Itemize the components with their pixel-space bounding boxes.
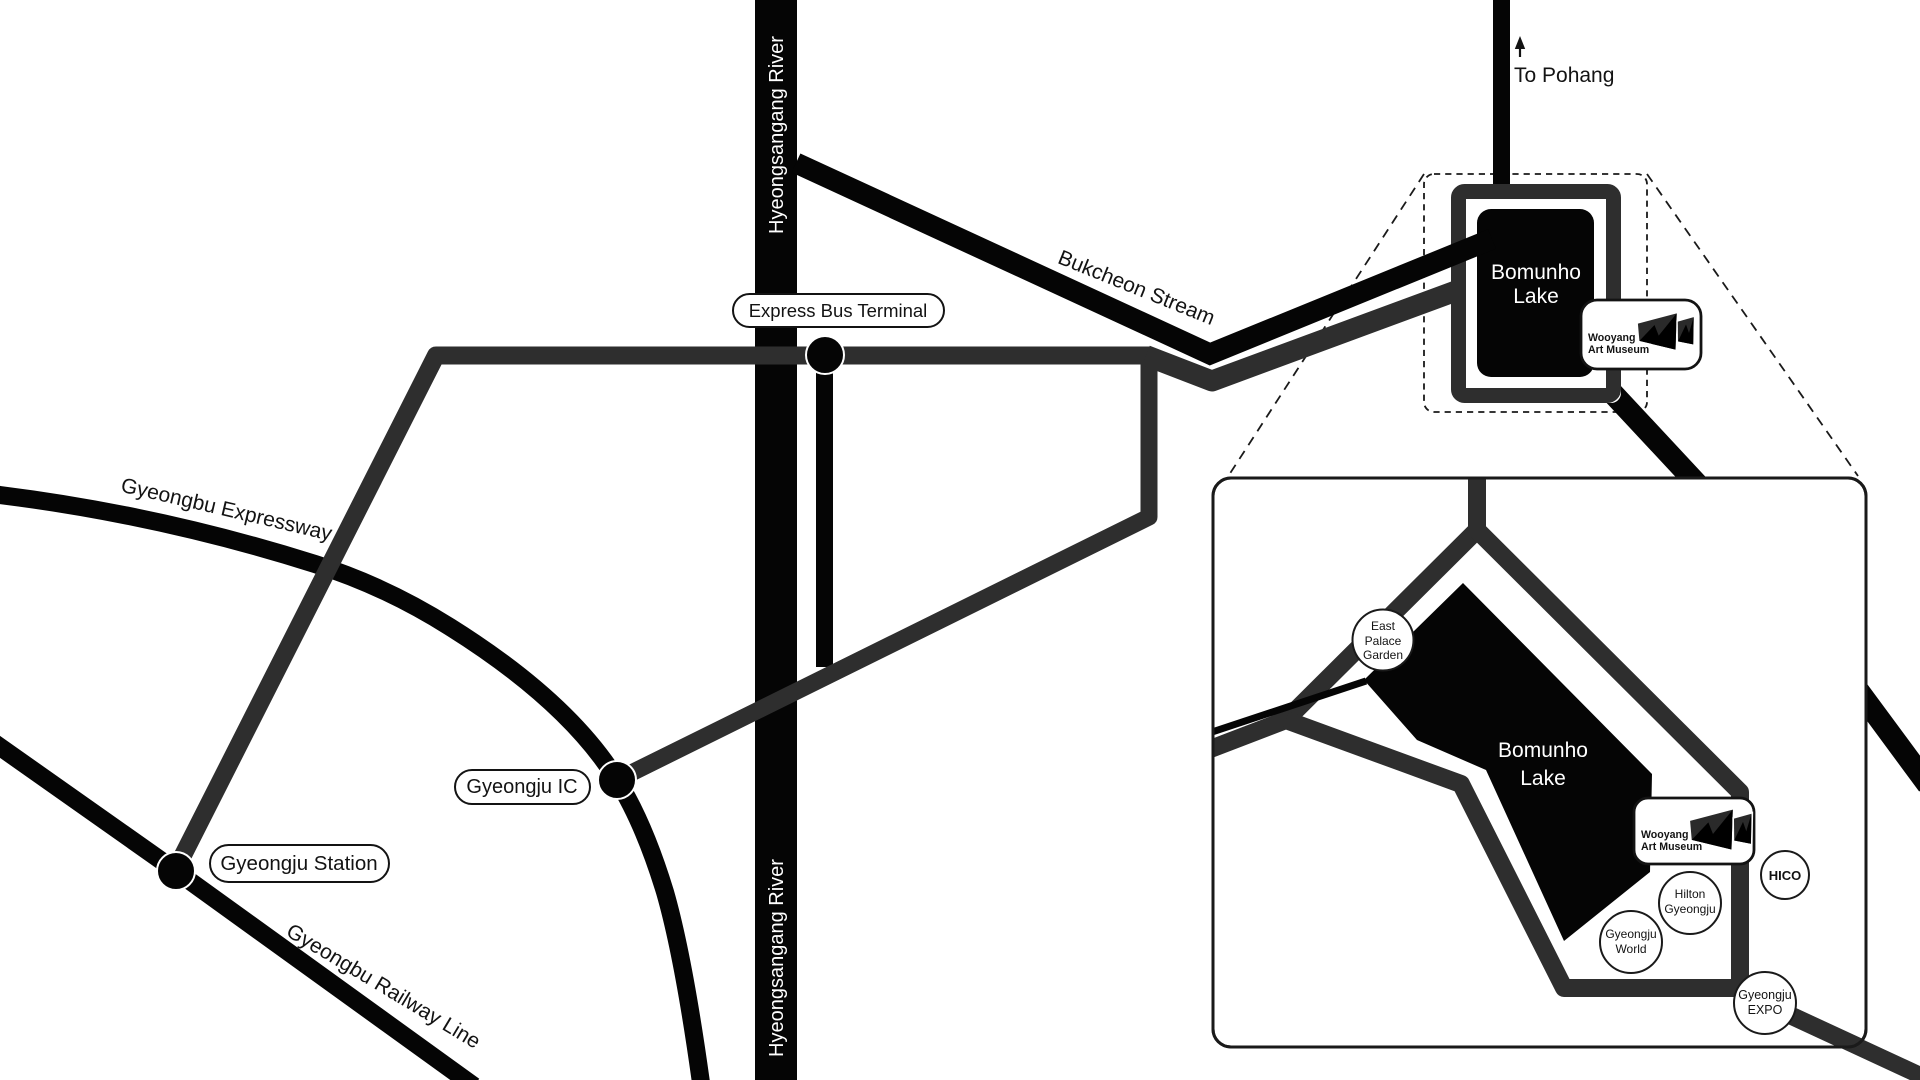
svg-text:Bomunho: Bomunho: [1491, 261, 1581, 284]
svg-text:Garden: Garden: [1363, 648, 1403, 662]
svg-text:Gyeongju: Gyeongju: [1738, 988, 1792, 1002]
svg-text:Lake: Lake: [1513, 285, 1559, 308]
svg-text:Gyeongju: Gyeongju: [1664, 902, 1715, 916]
svg-text:To Pohang: To Pohang: [1514, 64, 1614, 87]
svg-text:Express Bus Terminal: Express Bus Terminal: [749, 300, 928, 321]
svg-text:Hyeongsangang River: Hyeongsangang River: [766, 859, 788, 1057]
svg-text:Lake: Lake: [1520, 767, 1566, 790]
svg-text:Gyeongju IC: Gyeongju IC: [466, 776, 577, 798]
svg-text:Hyeongsangang River: Hyeongsangang River: [766, 36, 788, 234]
svg-text:Bomunho: Bomunho: [1498, 739, 1588, 762]
svg-text:EXPO: EXPO: [1748, 1003, 1783, 1017]
svg-text:Palace: Palace: [1365, 634, 1402, 648]
svg-text:HICO: HICO: [1769, 868, 1802, 883]
svg-text:Wooyang: Wooyang: [1641, 829, 1688, 841]
svg-text:World: World: [1615, 942, 1646, 956]
svg-text:East: East: [1371, 619, 1396, 633]
svg-text:Gyeongju: Gyeongju: [1605, 927, 1656, 941]
svg-text:Hilton: Hilton: [1675, 887, 1706, 901]
svg-text:Art Museum: Art Museum: [1588, 344, 1649, 356]
svg-text:Wooyang: Wooyang: [1588, 332, 1635, 344]
svg-text:Gyeongju Station: Gyeongju Station: [220, 852, 377, 875]
svg-text:Art Museum: Art Museum: [1641, 841, 1702, 853]
